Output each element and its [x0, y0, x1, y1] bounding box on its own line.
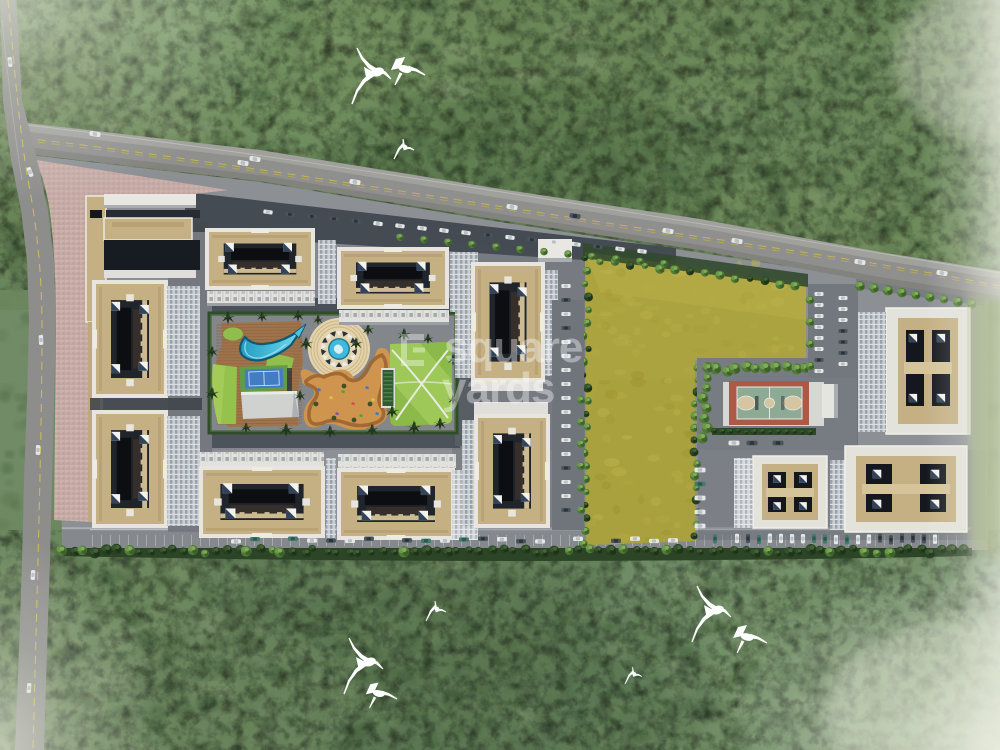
svg-text:yards: yards	[442, 364, 554, 413]
